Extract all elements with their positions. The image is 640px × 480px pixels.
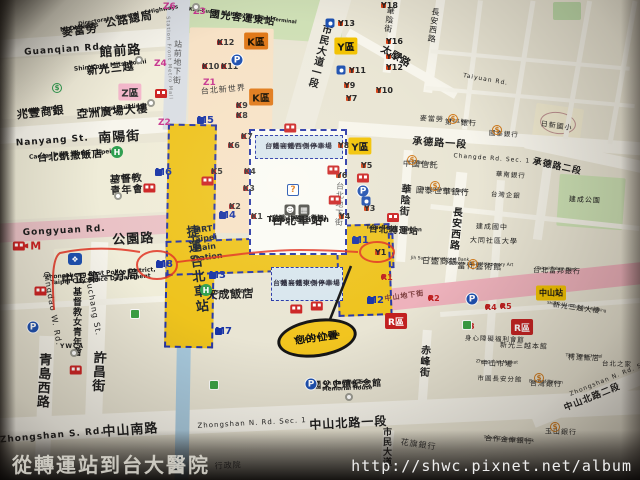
url-watermark: http://shwc.pixnet.net/album [351,457,632,475]
red-annotation [0,0,640,480]
caption-watermark: 從轉運站到台大醫院 [12,449,210,478]
map-photo: 台鐵高鐵西側停車場 TRA & HSR West Parking Lot 台北車… [0,0,640,480]
callout-pointer [329,266,351,322]
